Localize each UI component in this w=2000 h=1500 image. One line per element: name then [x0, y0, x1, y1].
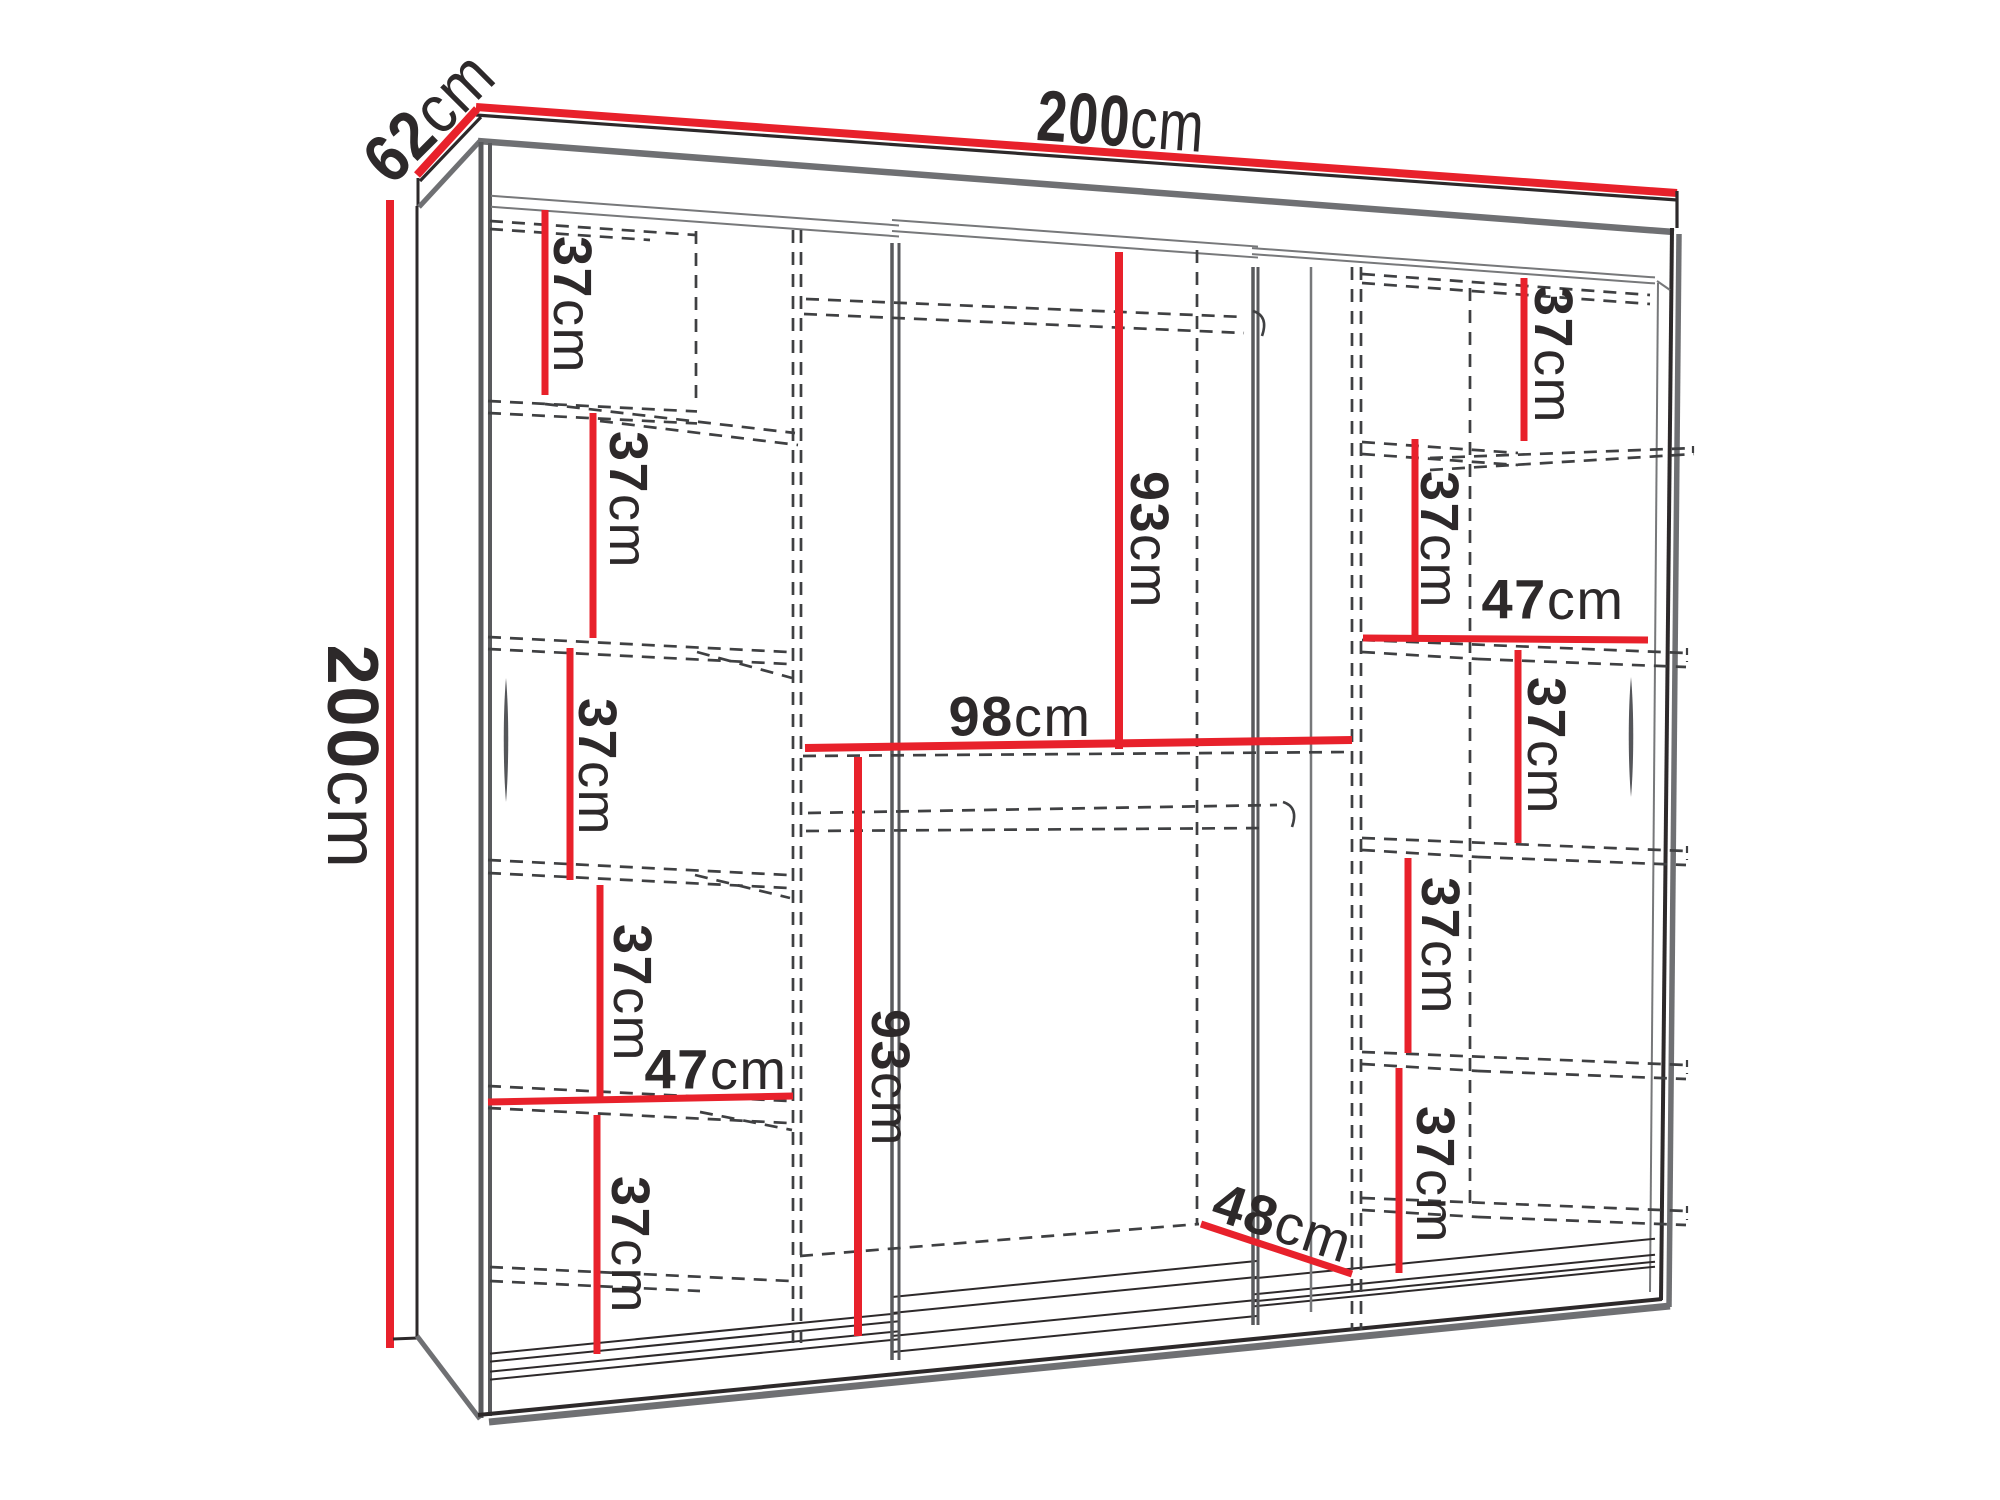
svg-text:37cm: 37cm	[1409, 471, 1469, 609]
svg-text:200cm: 200cm	[312, 645, 392, 870]
svg-text:47cm: 47cm	[1482, 568, 1625, 631]
svg-text:37cm: 37cm	[1410, 877, 1470, 1015]
svg-text:37cm: 37cm	[542, 236, 602, 374]
svg-text:98cm: 98cm	[949, 685, 1092, 748]
svg-text:37cm: 37cm	[1405, 1106, 1465, 1244]
svg-text:37cm: 37cm	[1516, 677, 1576, 815]
svg-text:200cm: 200cm	[1034, 76, 1207, 168]
svg-text:93cm: 93cm	[1119, 471, 1179, 609]
svg-text:37cm: 37cm	[567, 698, 627, 836]
svg-text:47cm: 47cm	[645, 1038, 788, 1101]
svg-text:37cm: 37cm	[1523, 286, 1583, 424]
svg-text:37cm: 37cm	[598, 431, 658, 569]
svg-text:37cm: 37cm	[600, 1176, 660, 1314]
svg-text:93cm: 93cm	[860, 1009, 920, 1147]
